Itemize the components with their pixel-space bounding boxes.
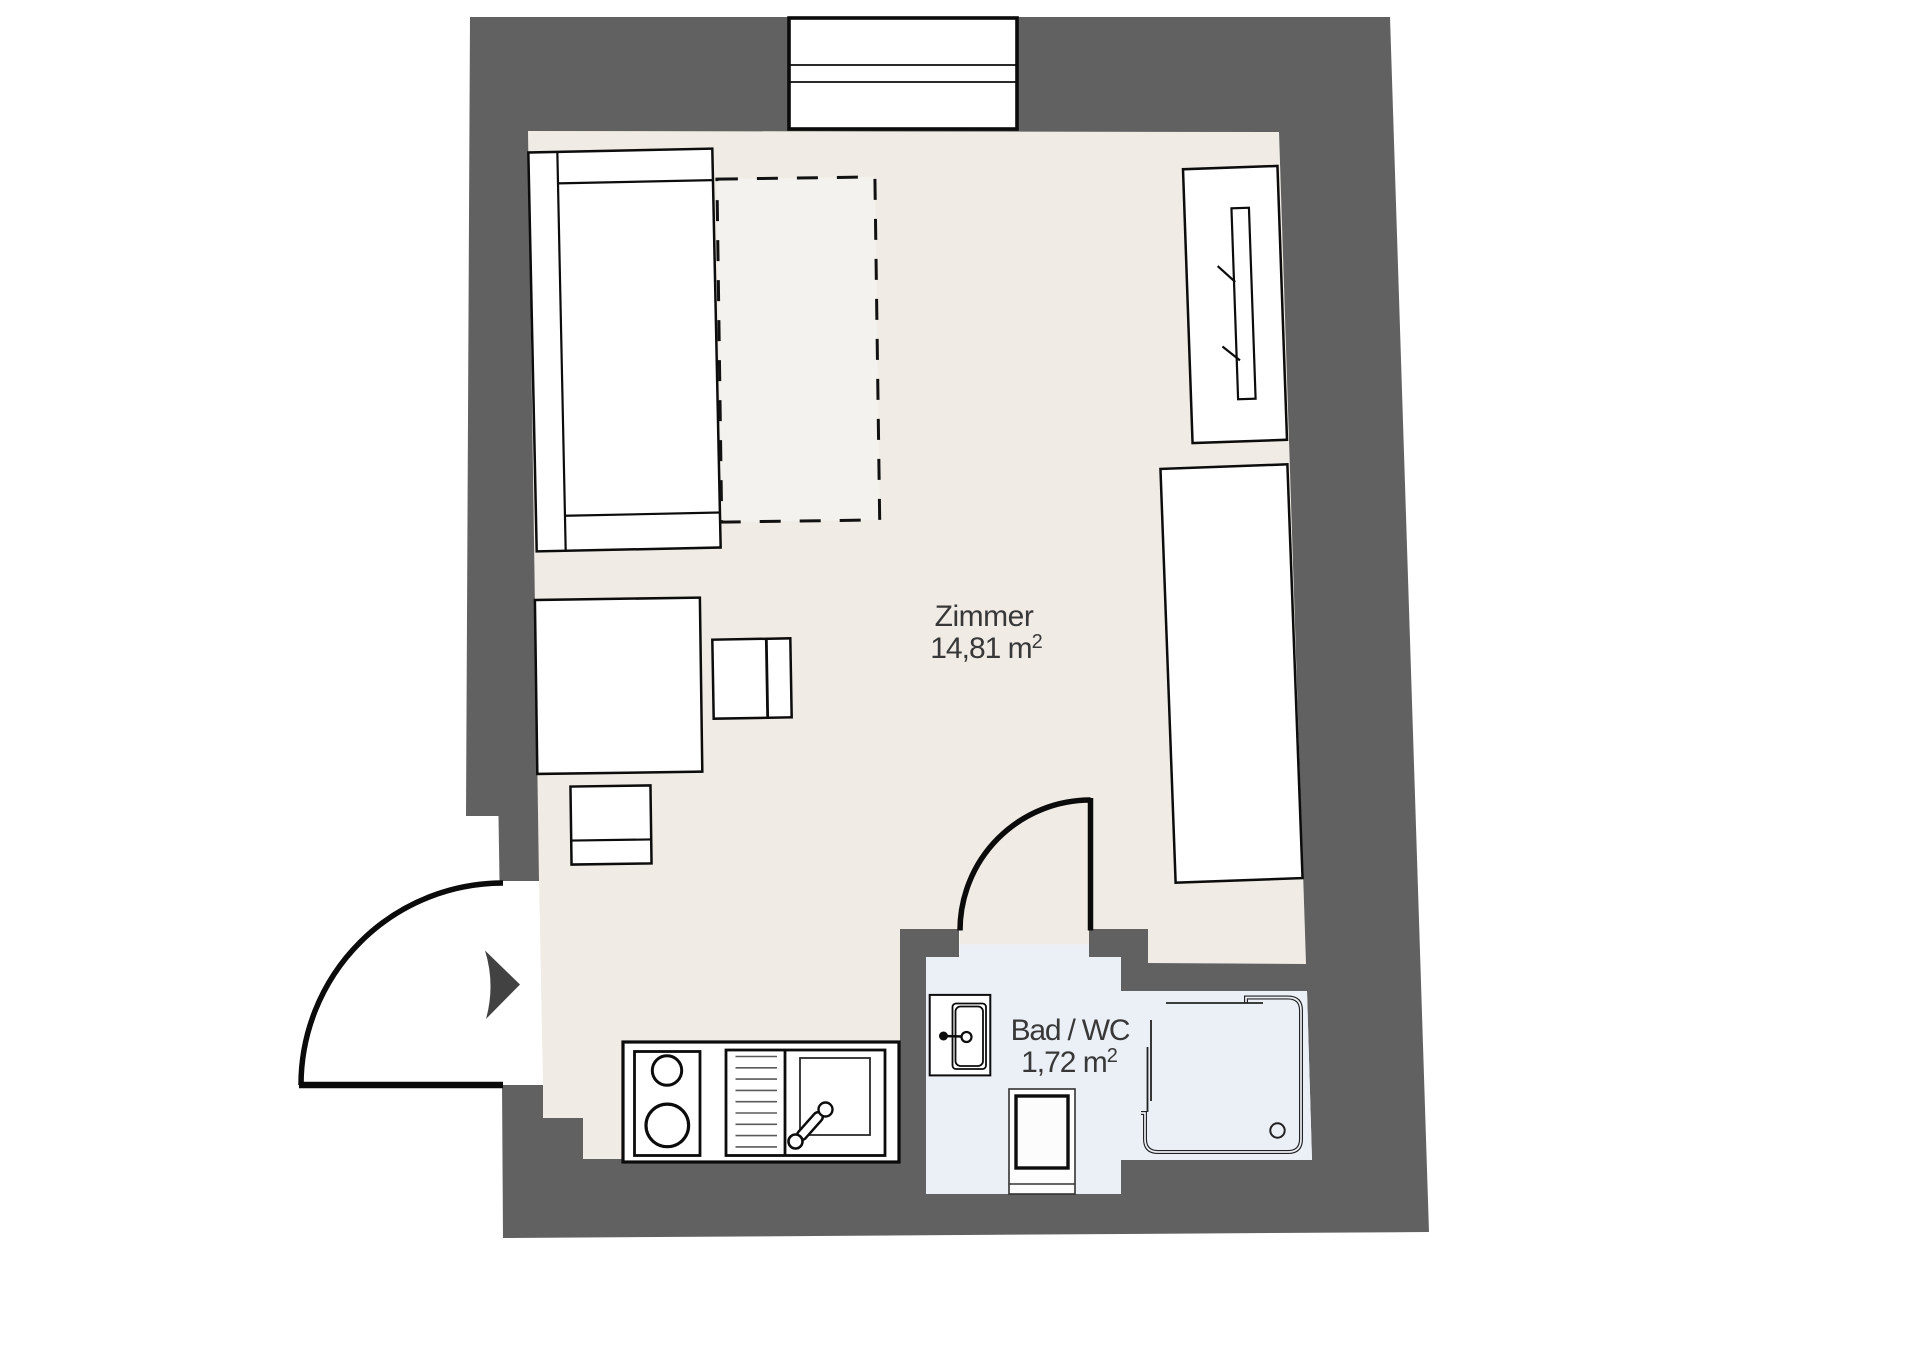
svg-text:Bad / WC: Bad / WC: [1011, 1014, 1130, 1047]
svg-text:Zimmer: Zimmer: [935, 600, 1034, 633]
svg-text:14,81 m2: 14,81 m2: [930, 631, 1042, 665]
svg-text:1,72 m2: 1,72 m2: [1021, 1045, 1118, 1079]
